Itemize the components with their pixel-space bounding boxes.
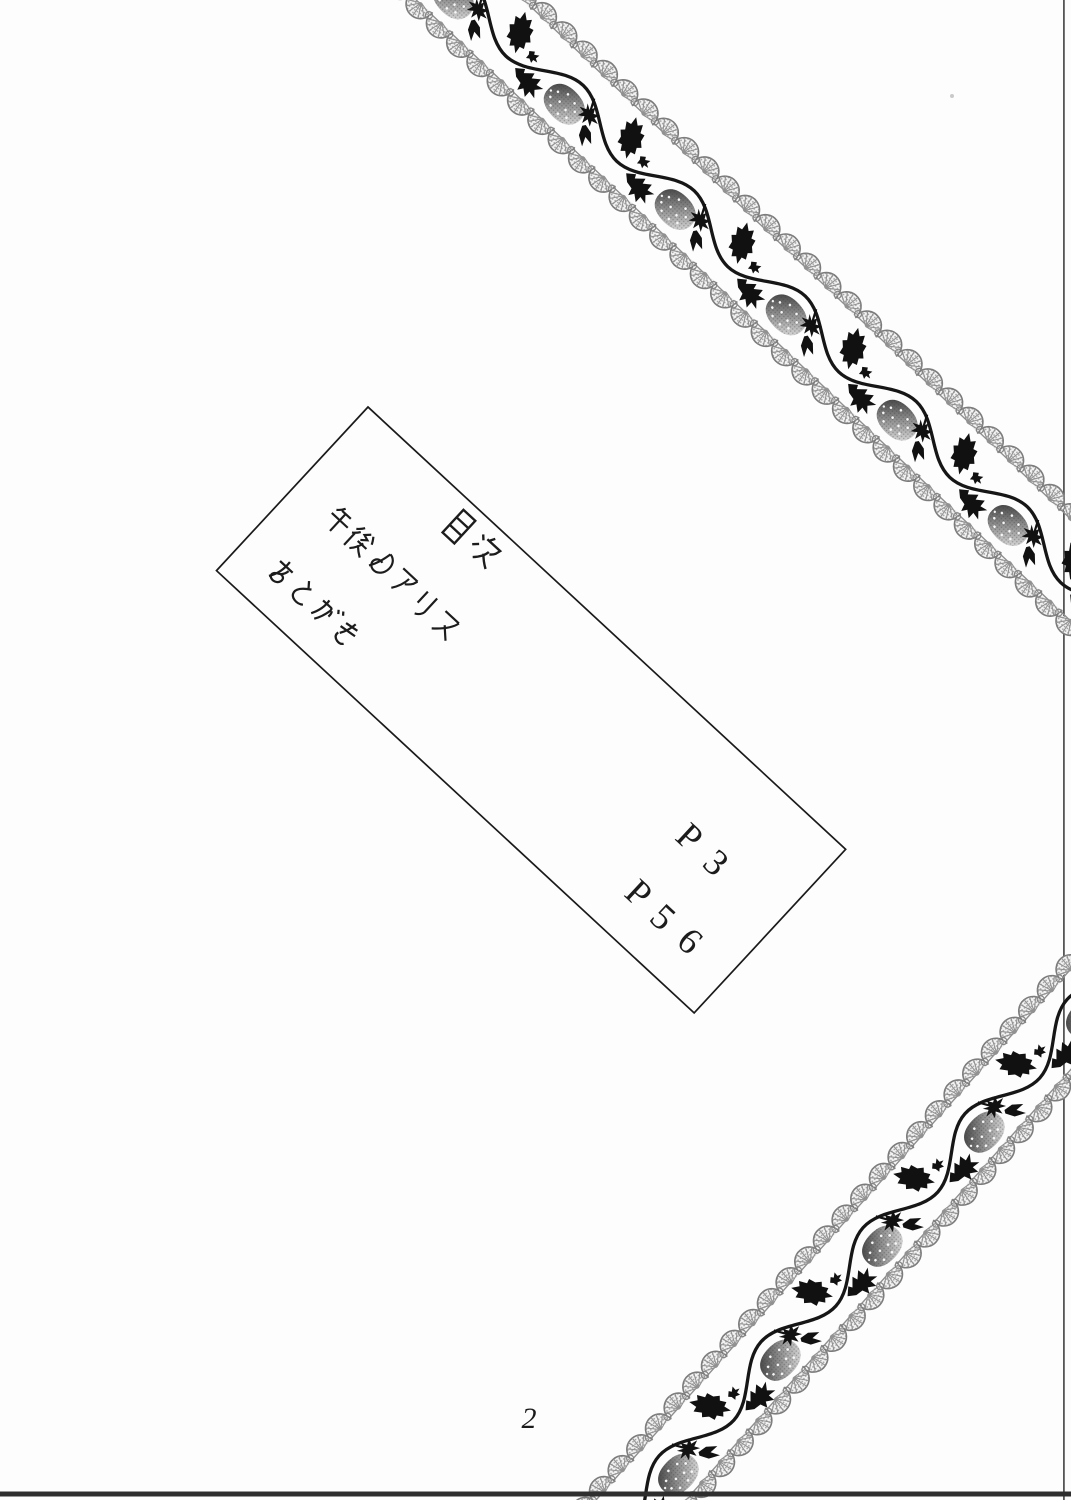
svg-text:2: 2 (522, 1402, 537, 1435)
